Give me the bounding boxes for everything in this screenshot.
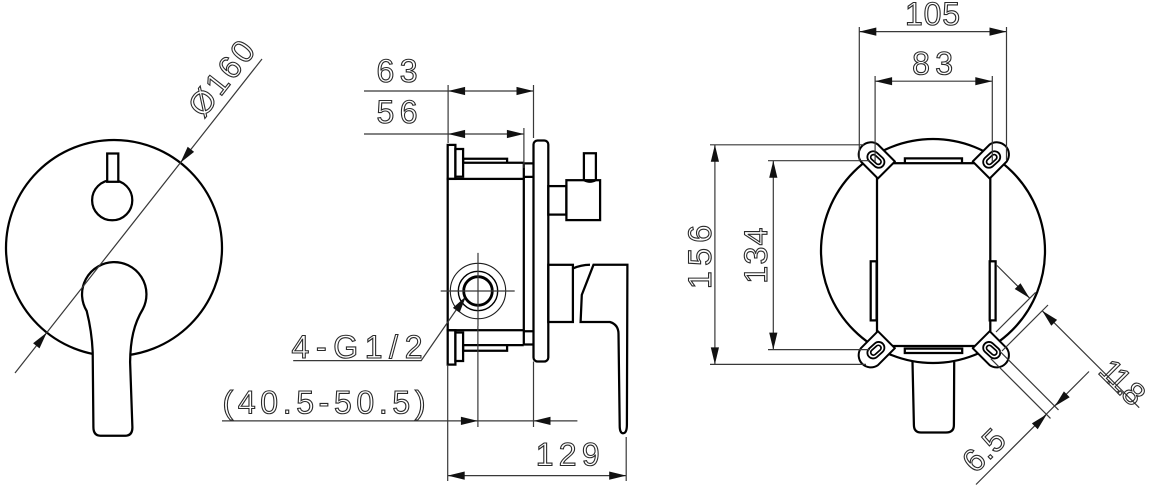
svg-text:11.8: 11.8 bbox=[1092, 352, 1153, 413]
svg-text:83: 83 bbox=[912, 46, 953, 82]
svg-text:(40.5-50.5): (40.5-50.5) bbox=[223, 385, 426, 421]
svg-text:105: 105 bbox=[905, 0, 960, 32]
svg-text:156: 156 bbox=[682, 225, 718, 289]
svg-text:4-G1/2: 4-G1/2 bbox=[292, 329, 423, 365]
svg-text:6.5: 6.5 bbox=[955, 421, 1013, 479]
svg-text:134: 134 bbox=[738, 228, 774, 284]
svg-text:129: 129 bbox=[536, 436, 600, 472]
svg-text:56: 56 bbox=[377, 94, 418, 130]
svg-text:63: 63 bbox=[377, 53, 418, 89]
